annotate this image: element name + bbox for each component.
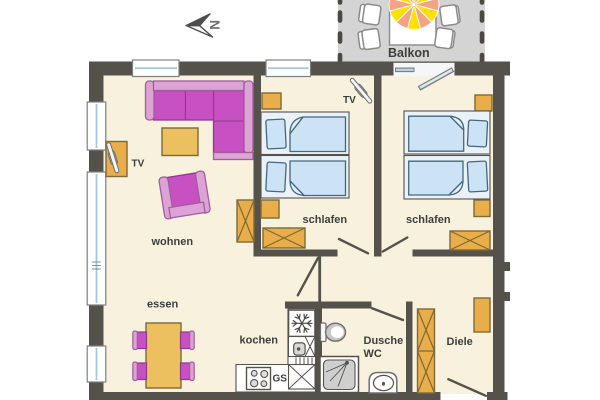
svg-text:Diele: Diele <box>447 336 473 348</box>
svg-text:GS: GS <box>273 374 288 385</box>
svg-text:kochen: kochen <box>240 335 279 347</box>
svg-text:schlafen: schlafen <box>406 214 451 226</box>
svg-text:N: N <box>207 20 222 30</box>
svg-text:wohnen: wohnen <box>151 236 194 248</box>
svg-text:WC: WC <box>364 348 382 360</box>
svg-text:TV: TV <box>132 159 145 170</box>
svg-text:essen: essen <box>147 299 178 311</box>
svg-text:TV: TV <box>343 95 356 106</box>
svg-text:schlafen: schlafen <box>303 214 348 226</box>
svg-text:Dusche: Dusche <box>364 335 404 347</box>
svg-text:Balkon: Balkon <box>388 46 430 60</box>
